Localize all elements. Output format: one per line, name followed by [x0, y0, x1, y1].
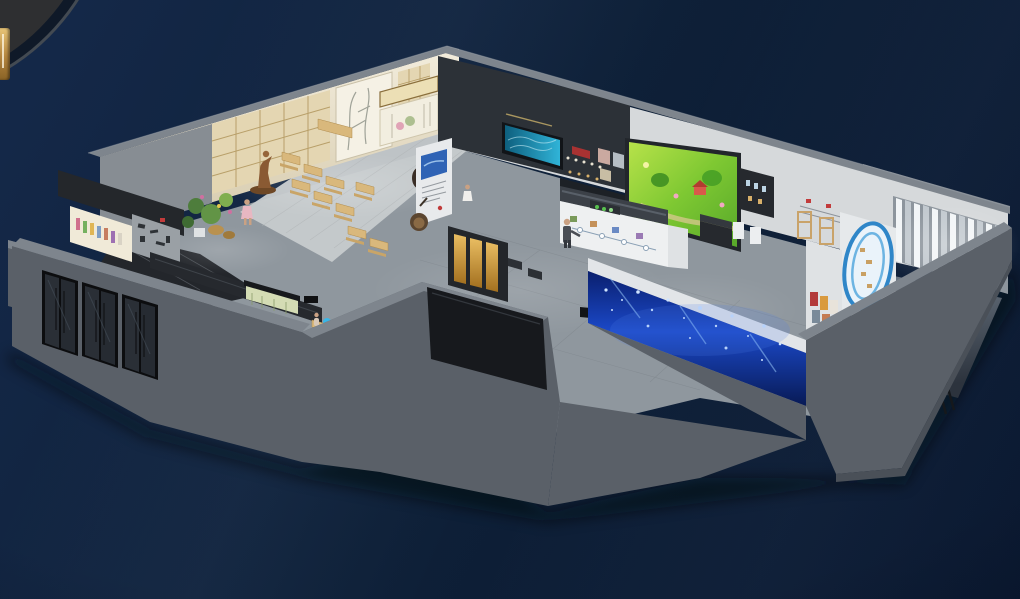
render-canvas	[0, 0, 1020, 599]
vignette-overlay	[0, 0, 1020, 599]
